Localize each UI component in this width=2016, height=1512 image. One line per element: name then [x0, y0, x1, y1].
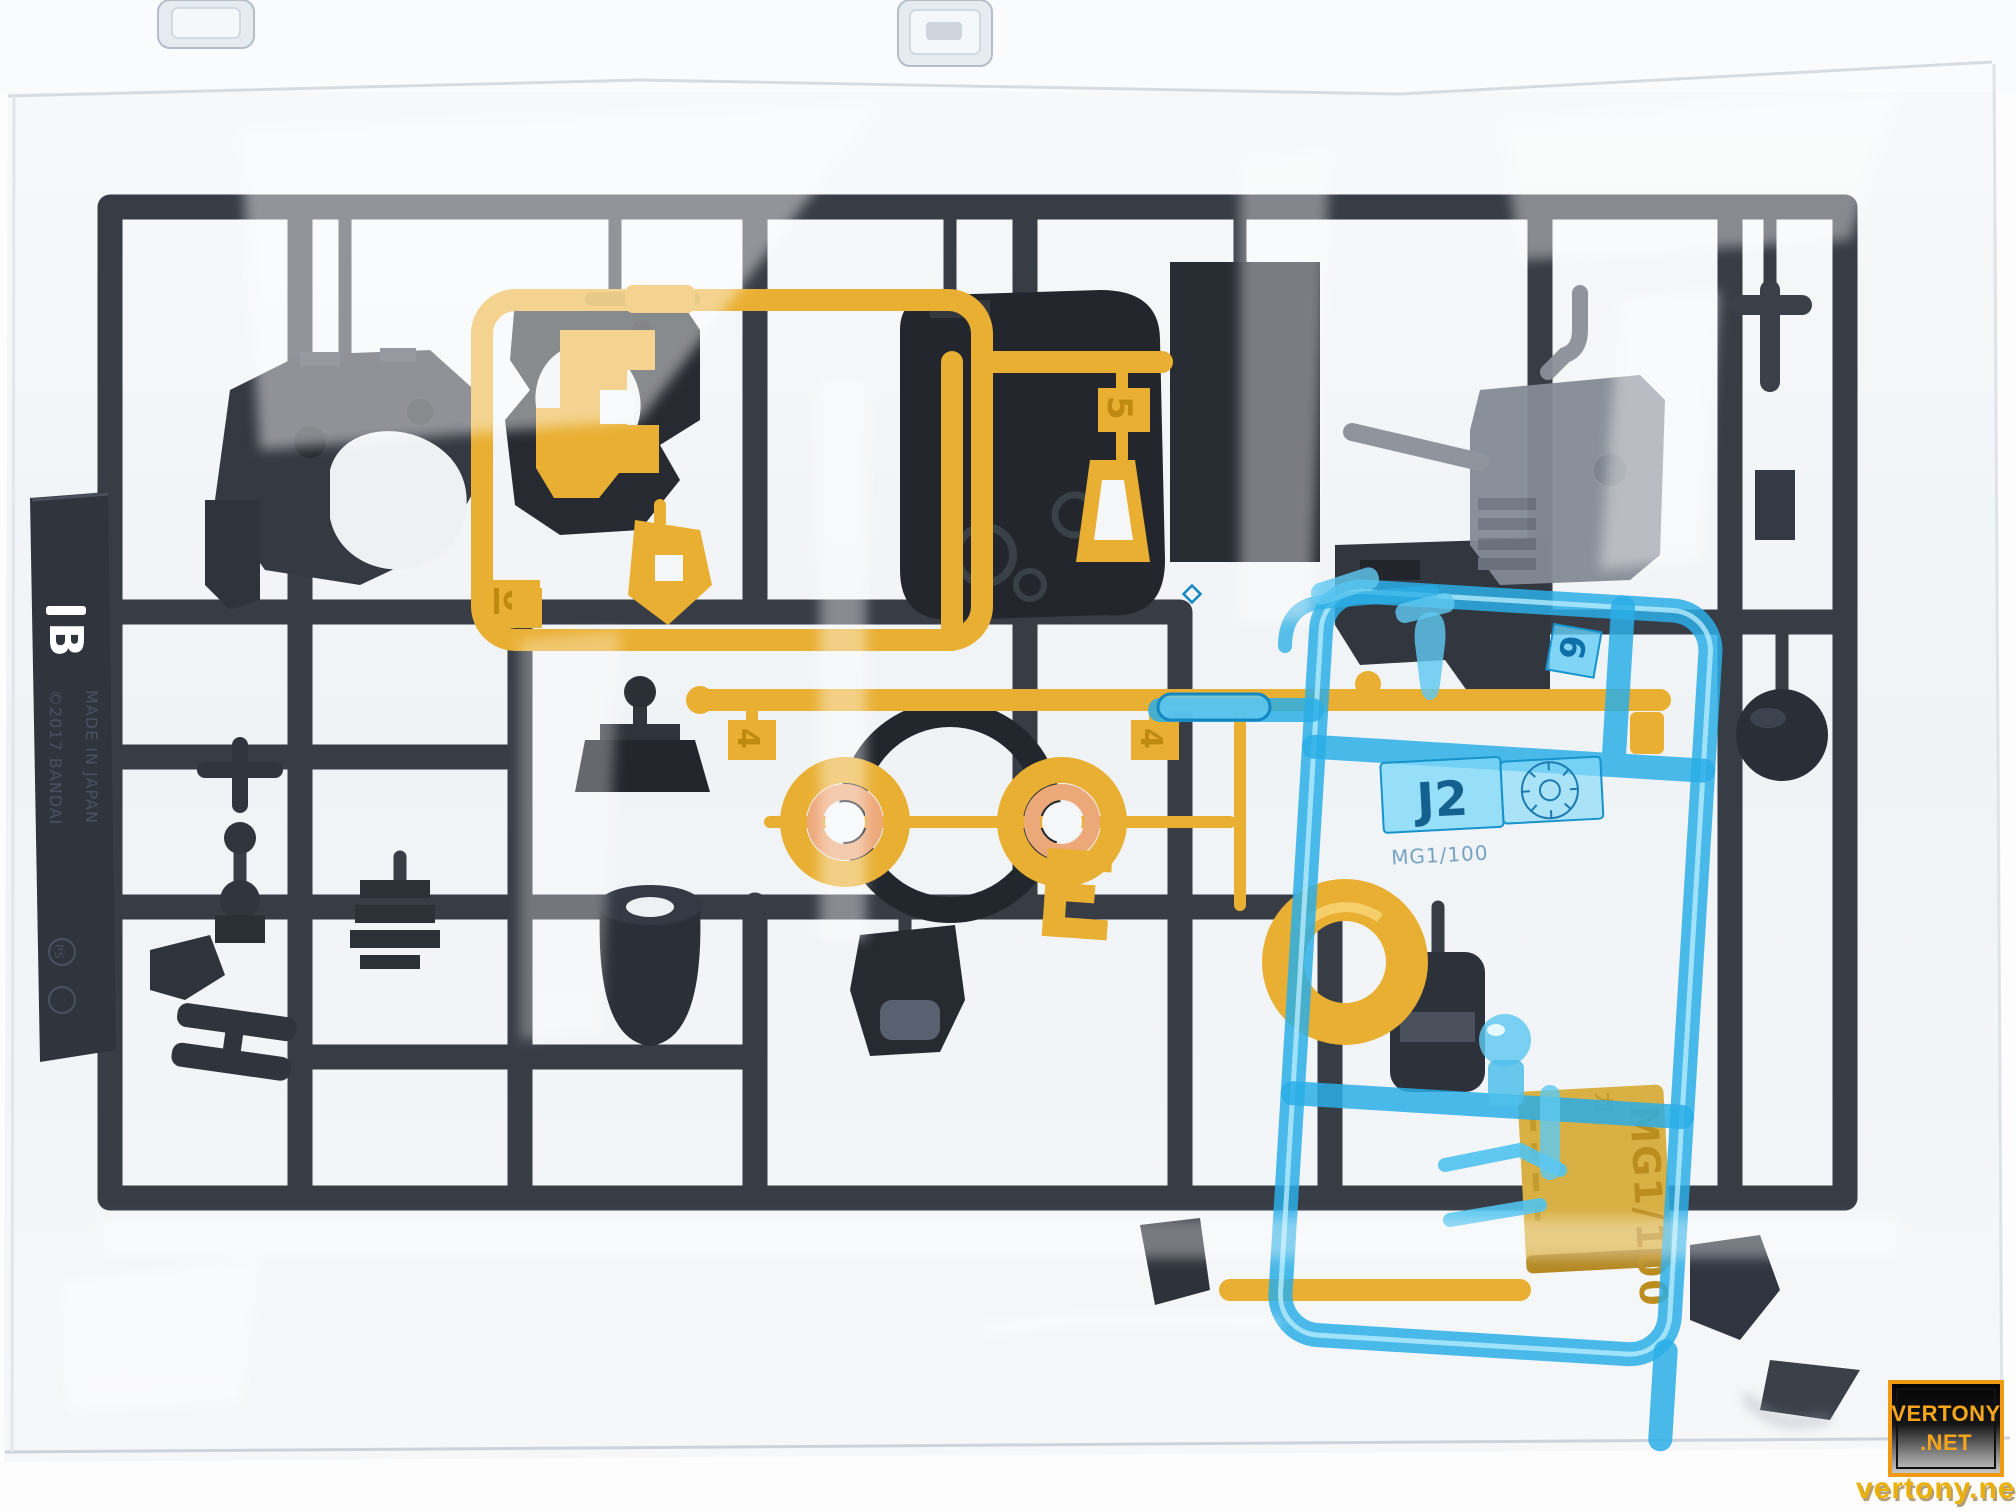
- watermark-badge: VERTONY .NET: [1890, 1382, 2002, 1475]
- gate-number-5: 5: [1099, 396, 1139, 420]
- watermark-site-text: vertony.net: [1856, 1472, 2016, 1505]
- yellow-side-tab: [512, 588, 542, 628]
- yellow-small-tag: [1630, 712, 1664, 754]
- runner-letter-tab: B ©2017 BANDAI MADE IN JAPAN PS: [30, 492, 116, 1062]
- blue-runner-code: J2: [1412, 771, 1469, 830]
- material-code: PS: [52, 944, 65, 960]
- watermark-badge-line1: VERTONY: [1891, 1401, 2000, 1426]
- blue-gate-tag-6: 6: [1546, 624, 1601, 678]
- watermark-badge-line2: .NET: [1920, 1430, 1972, 1455]
- gate-tag-4a: 4: [728, 720, 776, 760]
- gate-number-4a: 4: [730, 728, 765, 749]
- gate-tag-5: 5: [1098, 388, 1150, 432]
- bag-clip-left: [158, 0, 254, 48]
- made-in-text: MADE IN JAPAN: [82, 690, 101, 824]
- part-blue-tube: [1540, 1085, 1560, 1180]
- runner-letter: B: [39, 622, 93, 657]
- blue-bottom-gate: [1660, 1351, 1665, 1439]
- bag-left-edge: [12, 96, 14, 1452]
- gate-tag-4b: 4: [1131, 720, 1179, 760]
- copyright-text: ©2017 BANDAI: [46, 690, 65, 825]
- photo-of-model-kit-runners-in-bag: B ©2017 BANDAI MADE IN JAPAN PS: [0, 0, 2016, 1512]
- part-right-ball: [1736, 689, 1828, 781]
- part-blue-elongated: [1158, 694, 1270, 720]
- letter-underline: [46, 606, 86, 615]
- bag-clip-center: [898, 0, 992, 66]
- blue-scale-text: MG1/100: [1391, 841, 1490, 870]
- gate-number-4b: 4: [1133, 728, 1168, 749]
- photo-canvas: B ©2017 BANDAI MADE IN JAPAN PS: [0, 0, 2016, 1512]
